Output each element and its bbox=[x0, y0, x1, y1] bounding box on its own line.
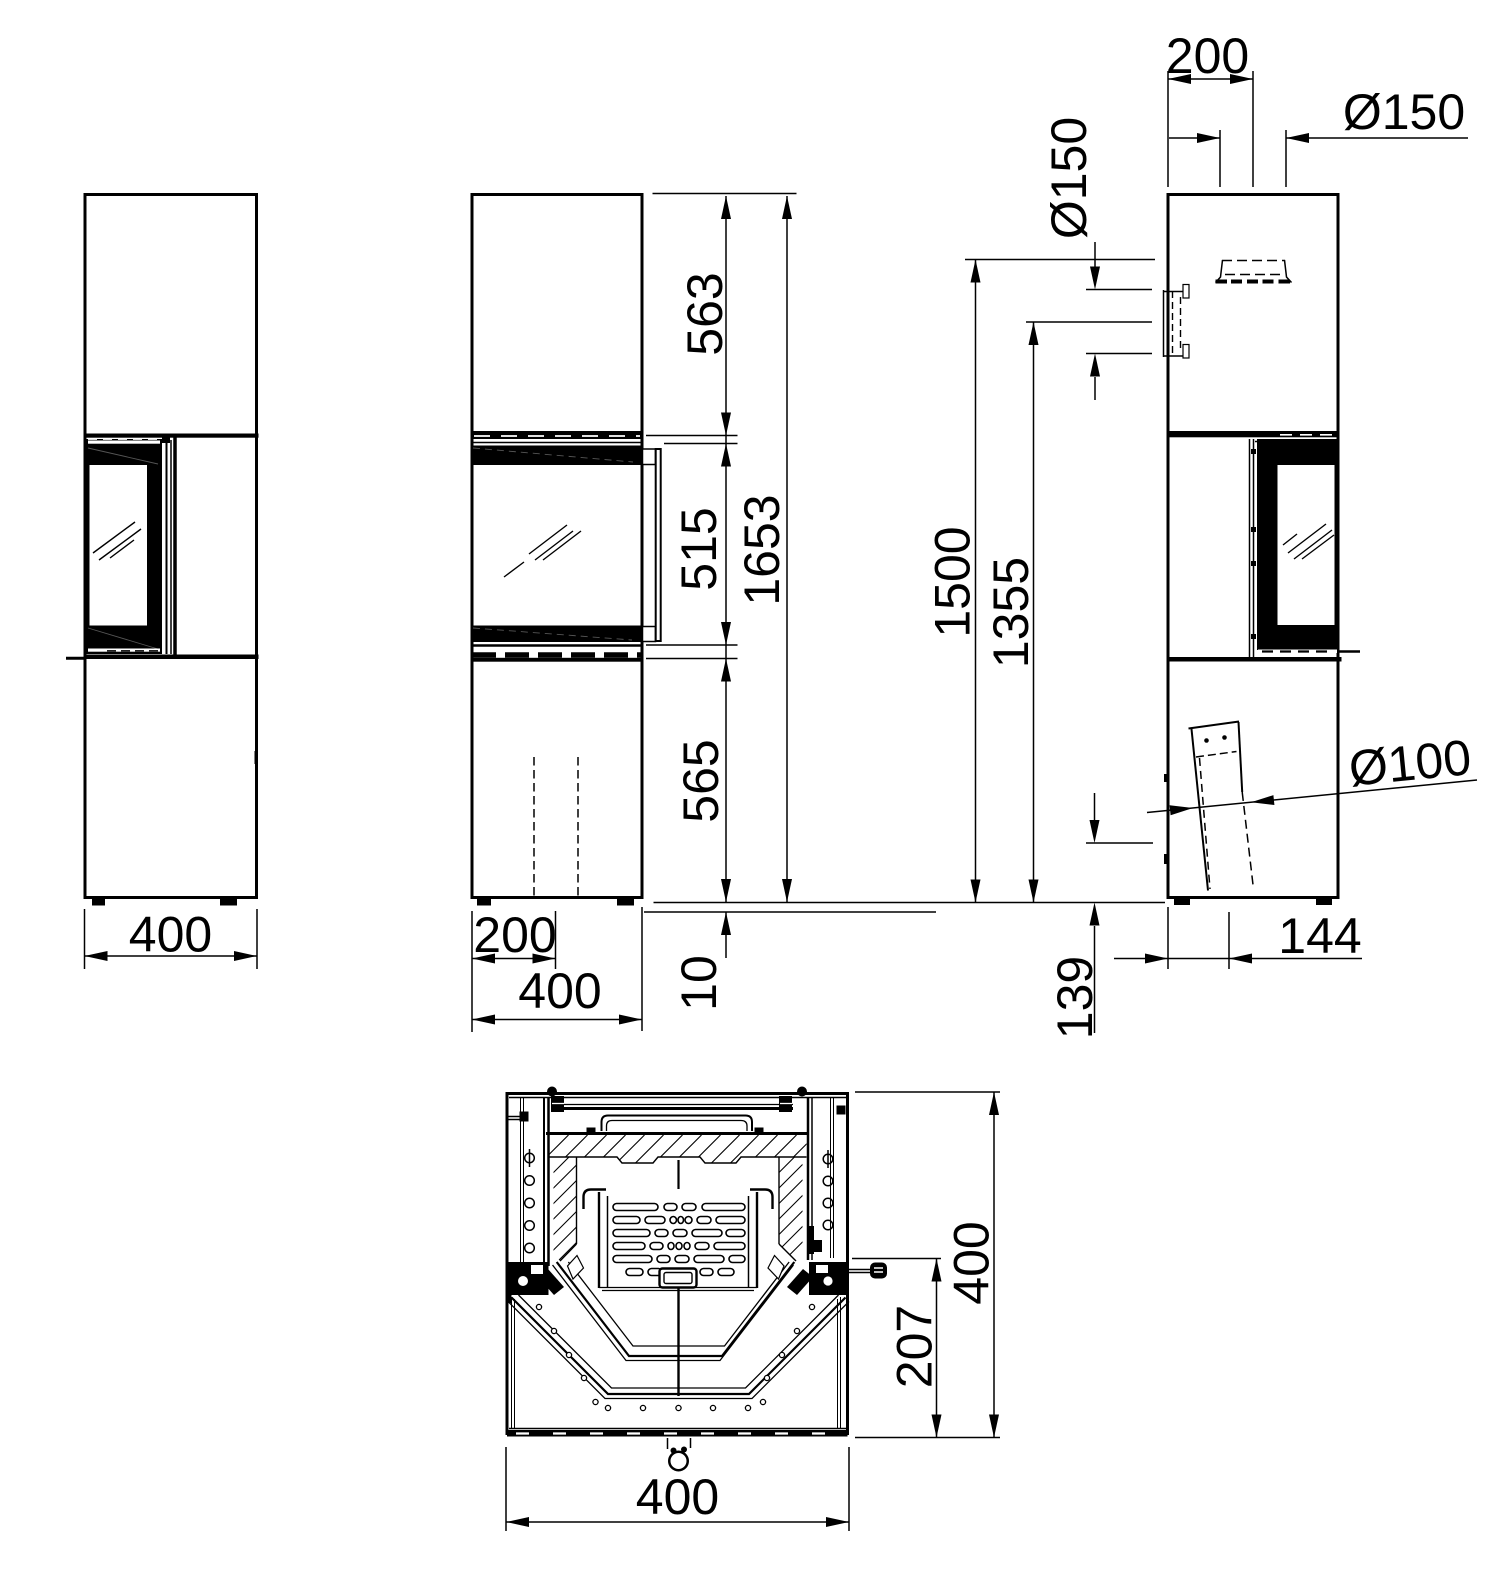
svg-text:139: 139 bbox=[1047, 956, 1103, 1039]
svg-text:400: 400 bbox=[944, 1221, 1000, 1304]
svg-text:400: 400 bbox=[518, 963, 601, 1019]
svg-text:563: 563 bbox=[677, 272, 733, 355]
svg-text:144: 144 bbox=[1278, 908, 1361, 964]
svg-text:400: 400 bbox=[129, 907, 212, 963]
svg-text:207: 207 bbox=[887, 1305, 943, 1388]
svg-text:1500: 1500 bbox=[925, 526, 981, 637]
svg-text:200: 200 bbox=[473, 907, 556, 963]
svg-text:1653: 1653 bbox=[734, 494, 790, 605]
svg-text:Ø150: Ø150 bbox=[1343, 84, 1465, 140]
svg-text:400: 400 bbox=[636, 1469, 719, 1525]
svg-text:Ø100: Ø100 bbox=[1346, 729, 1473, 797]
svg-text:Ø150: Ø150 bbox=[1041, 117, 1097, 239]
svg-text:1355: 1355 bbox=[983, 557, 1039, 668]
svg-text:515: 515 bbox=[671, 507, 727, 590]
svg-text:565: 565 bbox=[673, 739, 729, 822]
svg-text:10: 10 bbox=[671, 955, 727, 1011]
svg-text:200: 200 bbox=[1166, 28, 1249, 84]
